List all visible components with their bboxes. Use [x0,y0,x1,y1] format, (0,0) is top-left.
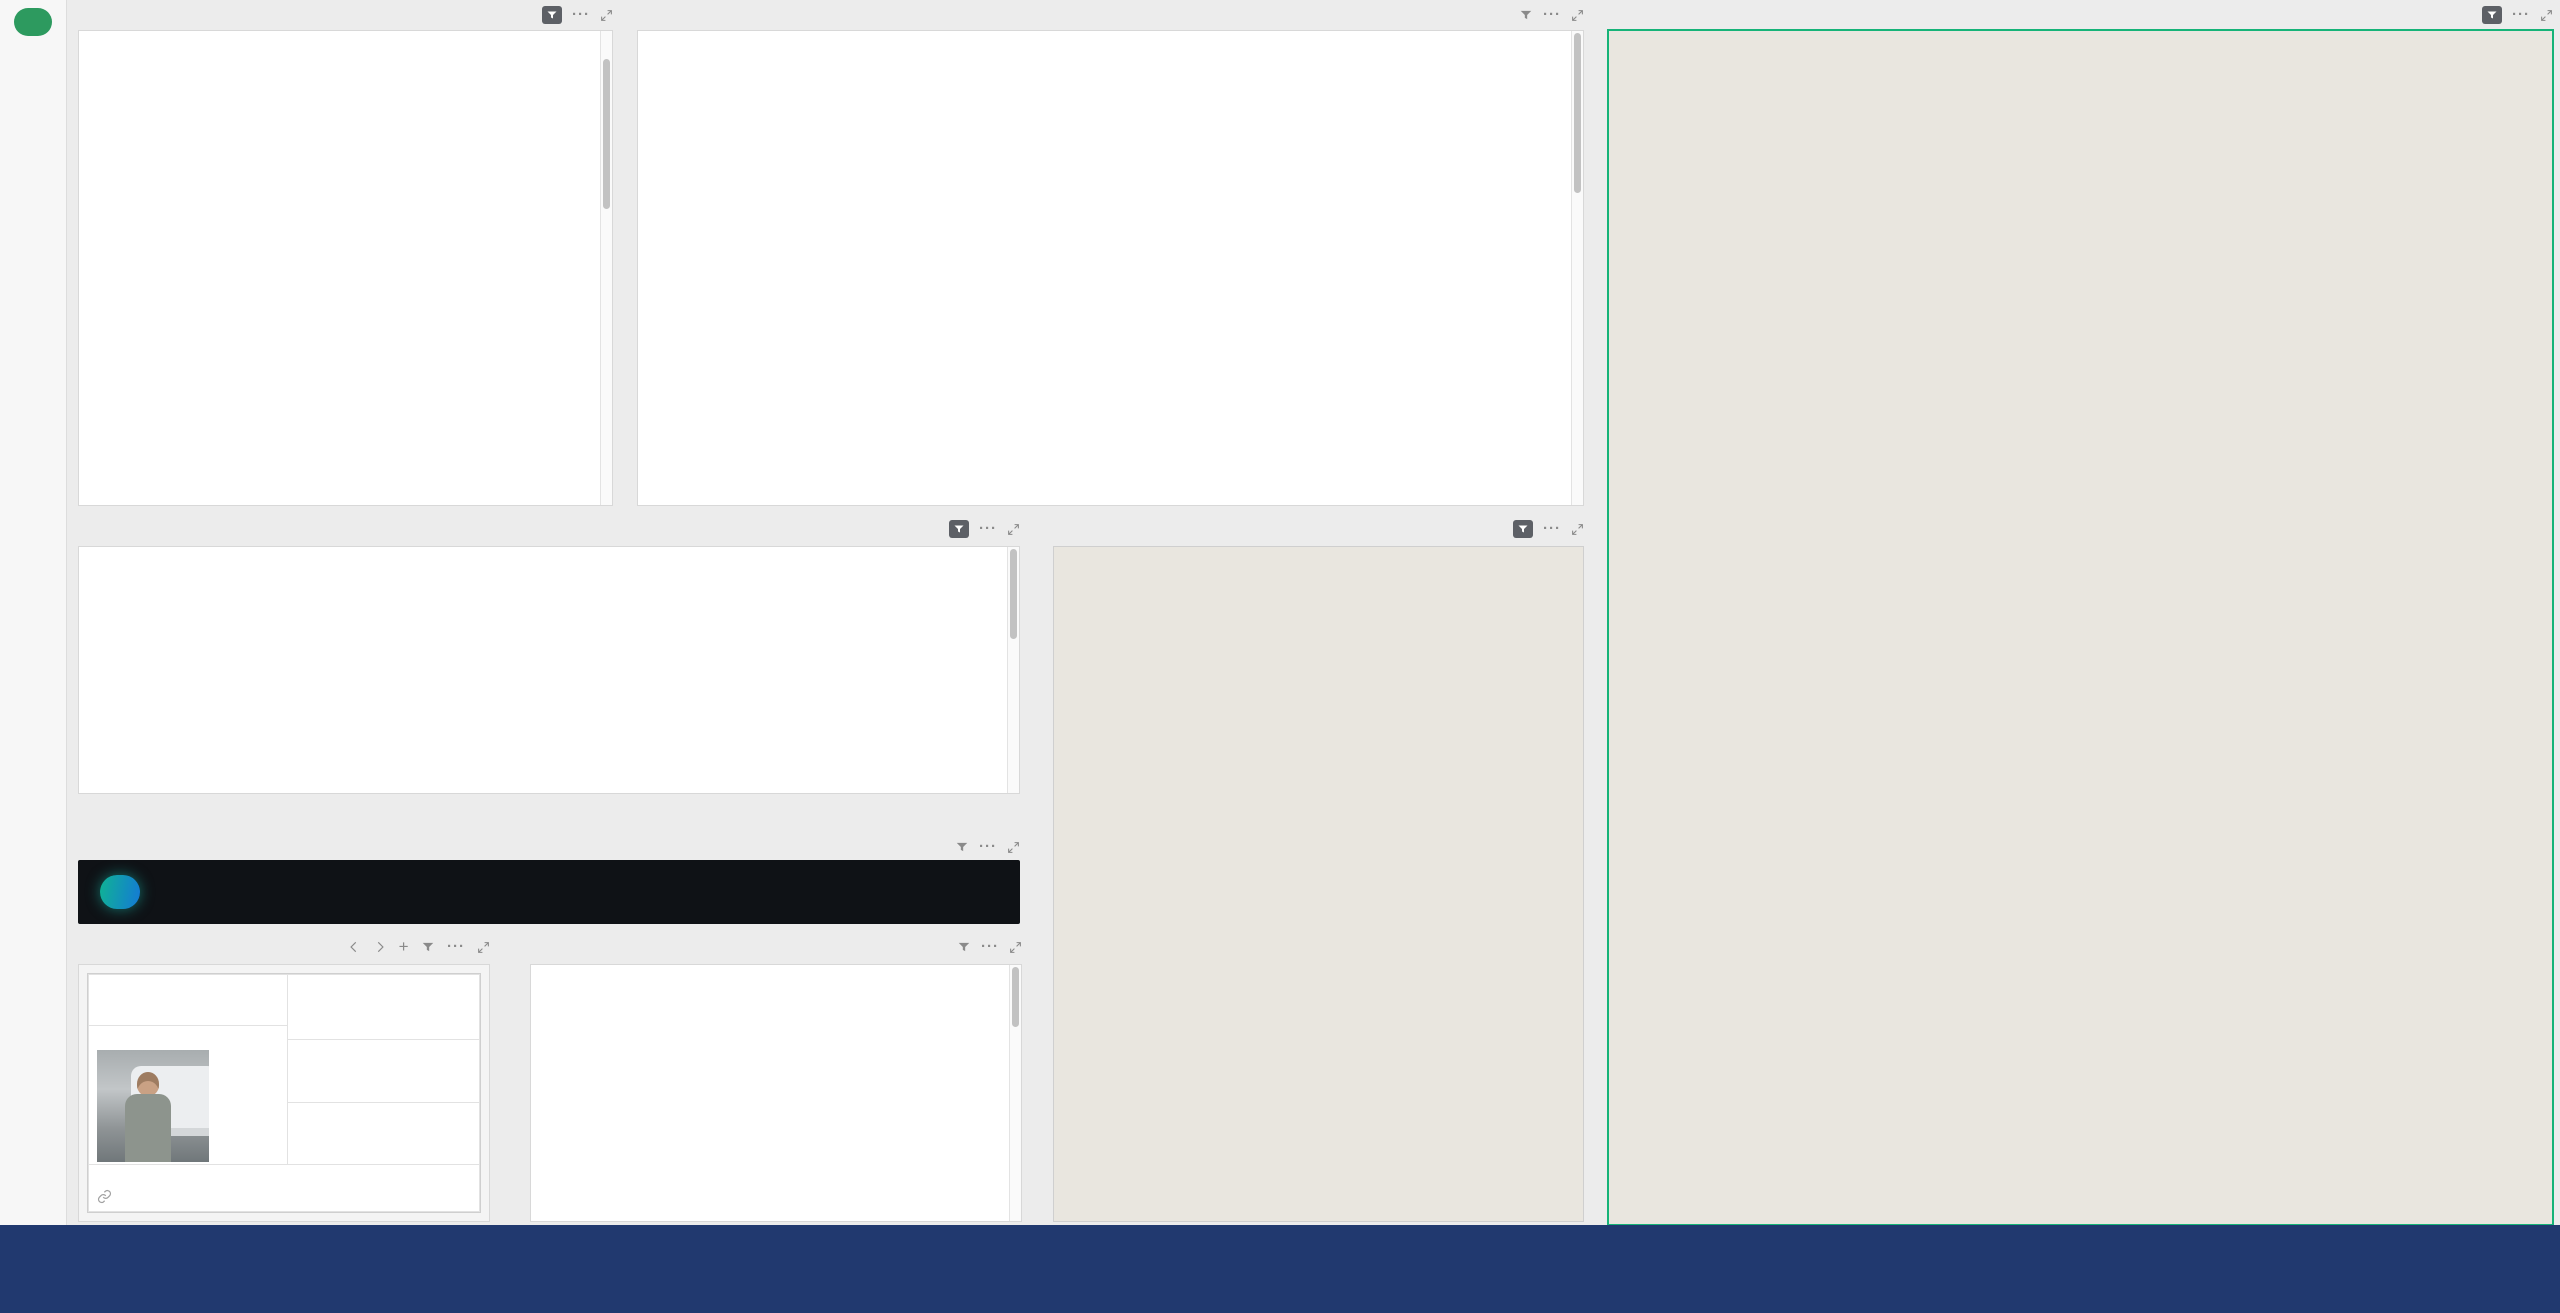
add-page-button[interactable] [14,8,52,36]
orders-scrollbar[interactable] [600,31,612,505]
expand-icon[interactable] [600,9,613,22]
routes-selected-panel: ··· [1053,520,1584,1222]
driver-phone-field[interactable] [287,974,480,1040]
more-options-icon[interactable]: ··· [2512,10,2530,20]
filter-icon[interactable] [542,6,562,24]
filter-icon[interactable] [1513,520,1533,538]
filter-icon[interactable] [1519,8,1533,22]
filter-icon[interactable] [955,840,969,854]
routes-all-map[interactable] [1608,30,2553,1225]
driver-img-field[interactable] [88,1025,288,1165]
expand-icon[interactable] [1009,941,1022,954]
driver-card [87,973,481,1213]
filter-icon[interactable] [949,520,969,538]
app-root: ··· ··· ··· [0,0,2560,1313]
vehicle-panel: ··· [637,6,1584,506]
delivery-scrollbar[interactable] [1007,547,1019,793]
expand-icon[interactable] [477,941,490,954]
more-options-icon[interactable]: ··· [1543,10,1561,20]
more-options-icon[interactable]: ··· [572,10,590,20]
next-record-icon[interactable] [373,940,387,954]
stops-scrollbar[interactable] [1009,965,1021,1221]
expand-icon[interactable] [1007,523,1020,536]
prev-record-icon[interactable] [347,940,361,954]
vehicle-scrollbar[interactable] [1571,31,1583,505]
filter-icon[interactable] [421,940,435,954]
expand-icon[interactable] [2540,9,2553,22]
more-options-icon[interactable]: ··· [1543,524,1561,534]
expand-icon[interactable] [1571,523,1584,536]
stops-panel: ··· [530,938,1022,1222]
filter-icon[interactable] [957,940,971,954]
description-banner [0,1225,2560,1313]
link-icon [97,1189,112,1204]
delivery-custom-panel: ··· [78,838,1020,928]
filter-icon[interactable] [2482,6,2502,24]
add-record-icon[interactable]: + [399,942,409,952]
orders-panel: ··· [78,6,613,506]
driver-panel: + ··· [78,938,490,1222]
driver-vehicle-field[interactable] [88,1164,480,1212]
driver-email-field[interactable] [287,1039,480,1103]
expand-icon[interactable] [1571,9,1584,22]
driver-telegram-field[interactable] [287,1102,480,1165]
driver-photo [97,1050,209,1162]
more-options-icon[interactable]: ··· [447,942,465,952]
routes-selected-map[interactable] [1053,546,1584,1222]
expand-icon[interactable] [1007,841,1020,854]
build-routes-button[interactable] [100,875,140,909]
more-options-icon[interactable]: ··· [981,942,999,952]
more-options-icon[interactable]: ··· [979,842,997,852]
more-options-icon[interactable]: ··· [979,524,997,534]
page-sidebar [0,0,67,1313]
routes-all-panel: ··· [1608,6,2553,1225]
delivery-panel: ··· [78,520,1020,796]
driver-name-field[interactable] [88,974,288,1026]
build-routes-bar [78,860,1020,924]
